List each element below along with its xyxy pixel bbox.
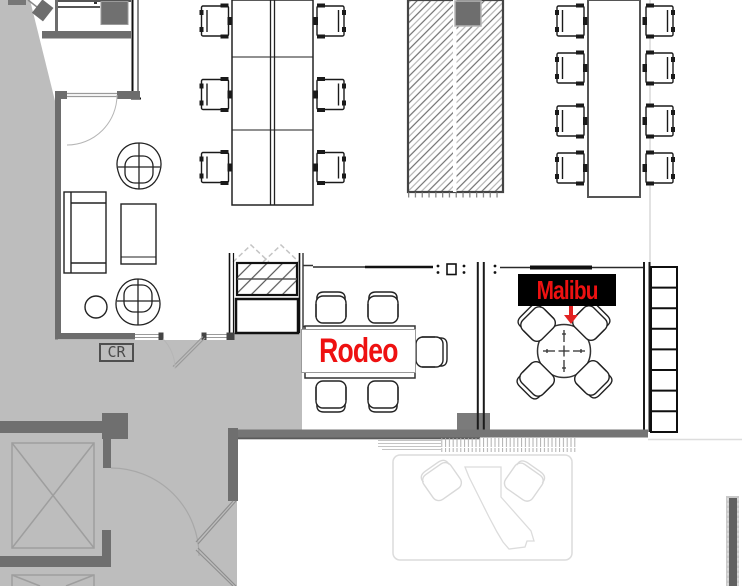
rodeo-chair <box>368 292 398 323</box>
rodeo-chair <box>416 337 447 367</box>
rodeo-chair <box>316 292 346 323</box>
curtain-fringe <box>441 438 576 452</box>
angled-door-panel <box>32 0 53 21</box>
south-wall <box>228 430 648 440</box>
table-chair <box>555 4 588 39</box>
lounge-chair <box>116 279 160 325</box>
table-chair <box>643 51 676 86</box>
lounge-area <box>55 99 161 339</box>
malibu-pointer-arrow-icon <box>564 306 578 324</box>
window-mullion-bar <box>726 496 739 586</box>
desk-chair <box>200 150 233 185</box>
rodeo-room-name: Rodeo <box>319 334 398 368</box>
locker-column <box>651 267 677 432</box>
ghost-chair <box>502 458 548 504</box>
desk-chair <box>314 4 347 39</box>
table-chair <box>643 104 676 139</box>
ghost-rug-group <box>393 455 572 560</box>
malibu-room-name: Malibu <box>536 277 597 303</box>
desk-bank <box>200 0 347 205</box>
cr-badge-text: CR <box>107 345 125 360</box>
desk-chair <box>200 77 233 112</box>
rodeo-chair <box>316 381 346 412</box>
suite-boundary-line <box>131 0 141 99</box>
floorplan-canvas: Rodeo Malibu CR <box>0 0 742 586</box>
upper-entry-door <box>55 91 140 145</box>
lounge-left-wall <box>55 99 61 339</box>
equipment-square <box>101 2 128 25</box>
cr-badge: CR <box>99 343 134 362</box>
hatched-zone <box>408 0 503 195</box>
desk-chair <box>314 150 347 185</box>
ghost-rug <box>393 455 572 560</box>
lounge-chair <box>117 143 161 189</box>
equipment-box <box>455 1 481 26</box>
table-chair <box>555 104 588 139</box>
long-table-area <box>555 0 675 197</box>
side-table <box>85 296 107 318</box>
california-outline <box>465 467 534 549</box>
malibu-room-label[interactable]: Malibu <box>518 274 616 306</box>
coffee-table <box>121 204 156 264</box>
desk-chair <box>200 4 233 39</box>
storage-closet <box>227 245 314 340</box>
door-jamb <box>447 264 456 275</box>
floorplan-svg <box>0 0 742 586</box>
table-chair <box>555 151 588 186</box>
table-chair <box>643 4 676 39</box>
sofa <box>64 192 106 273</box>
desk-chair <box>314 77 347 112</box>
rodeo-room-label[interactable]: Rodeo <box>301 329 416 373</box>
column <box>102 413 128 439</box>
rodeo-chair <box>368 381 398 412</box>
louver-lines <box>378 441 441 450</box>
ghost-chair <box>418 457 464 503</box>
table-chair <box>643 151 676 186</box>
table-chair <box>555 51 588 86</box>
